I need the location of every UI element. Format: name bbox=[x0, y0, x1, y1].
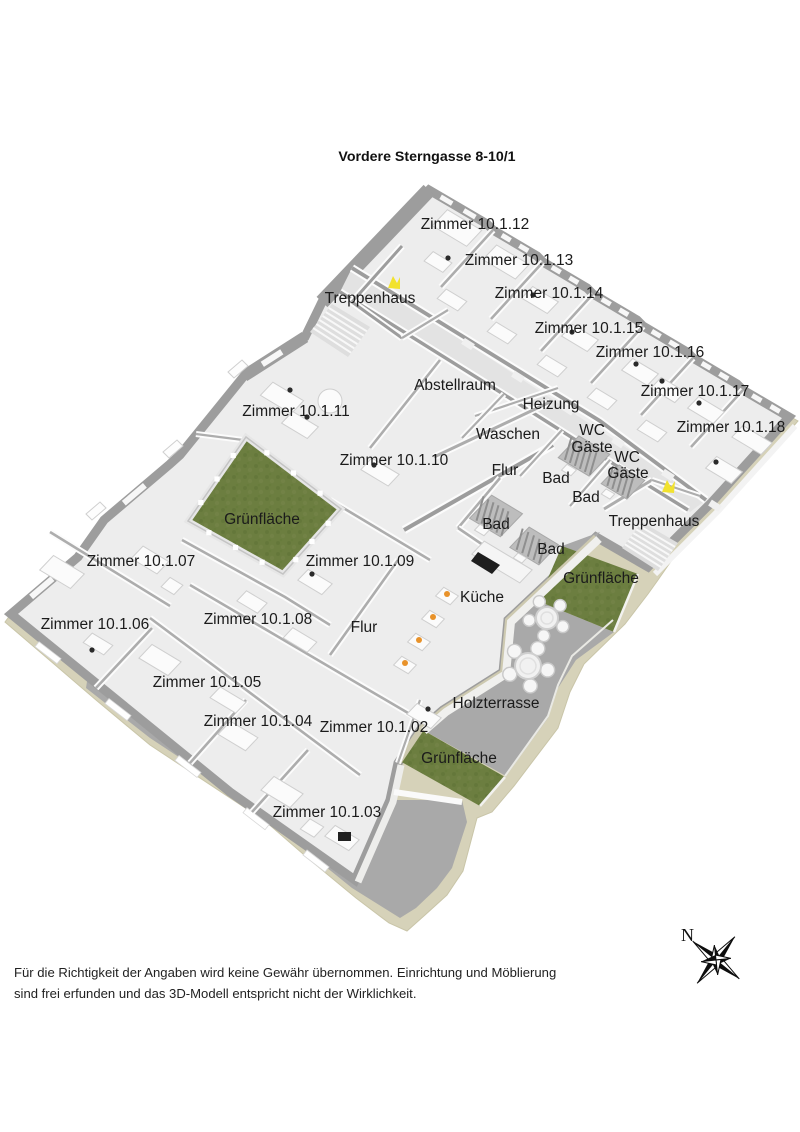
svg-text:Heizung: Heizung bbox=[523, 396, 580, 413]
svg-text:Zimmer 10.1.11: Zimmer 10.1.11 bbox=[242, 403, 349, 420]
svg-text:Zimmer 10.1.17: Zimmer 10.1.17 bbox=[641, 383, 750, 400]
svg-text:Zimmer 10.1.10: Zimmer 10.1.10 bbox=[340, 452, 449, 469]
svg-text:Zimmer 10.1.05: Zimmer 10.1.05 bbox=[153, 674, 262, 691]
svg-text:Zimmer 10.1.16: Zimmer 10.1.16 bbox=[596, 344, 705, 361]
svg-text:sind frei erfunden und das 3D-: sind frei erfunden und das 3D-Modell ent… bbox=[14, 986, 416, 1001]
svg-text:Flur: Flur bbox=[492, 462, 519, 479]
svg-text:Für die Richtigkeit der Angabe: Für die Richtigkeit der Angaben wird kei… bbox=[14, 965, 556, 980]
svg-text:Treppenhaus: Treppenhaus bbox=[609, 513, 700, 530]
svg-text:N: N bbox=[681, 925, 694, 945]
svg-text:Küche: Küche bbox=[460, 589, 504, 606]
svg-text:Zimmer 10.1.02: Zimmer 10.1.02 bbox=[320, 719, 429, 736]
svg-text:Zimmer 10.1.07: Zimmer 10.1.07 bbox=[87, 553, 196, 570]
svg-text:Waschen: Waschen bbox=[476, 426, 540, 443]
svg-text:Bad: Bad bbox=[572, 489, 600, 506]
svg-text:Zimmer 10.1.18: Zimmer 10.1.18 bbox=[677, 419, 786, 436]
svg-text:Zimmer 10.1.15: Zimmer 10.1.15 bbox=[535, 320, 644, 337]
svg-text:Bad: Bad bbox=[537, 541, 565, 558]
svg-text:Abstellraum: Abstellraum bbox=[414, 377, 496, 394]
svg-text:Zimmer 10.1.03: Zimmer 10.1.03 bbox=[273, 804, 382, 821]
svg-text:Zimmer 10.1.08: Zimmer 10.1.08 bbox=[204, 611, 313, 628]
svg-text:Zimmer 10.1.13: Zimmer 10.1.13 bbox=[465, 252, 574, 269]
svg-text:Grünfläche: Grünfläche bbox=[421, 750, 497, 767]
svg-text:Holzterrasse: Holzterrasse bbox=[453, 695, 540, 712]
svg-text:Gäste: Gäste bbox=[607, 465, 648, 482]
svg-text:Flur: Flur bbox=[351, 619, 378, 636]
svg-text:Zimmer 10.1.06: Zimmer 10.1.06 bbox=[41, 616, 150, 633]
svg-text:Treppenhaus: Treppenhaus bbox=[325, 290, 416, 307]
svg-text:Grünfläche: Grünfläche bbox=[224, 511, 300, 528]
svg-text:Zimmer 10.1.09: Zimmer 10.1.09 bbox=[306, 553, 415, 570]
svg-text:Zimmer 10.1.12: Zimmer 10.1.12 bbox=[421, 216, 530, 233]
svg-text:Grünfläche: Grünfläche bbox=[563, 570, 639, 587]
svg-text:WC: WC bbox=[579, 422, 605, 439]
svg-text:Zimmer 10.1.14: Zimmer 10.1.14 bbox=[495, 285, 604, 302]
svg-text:WC: WC bbox=[614, 449, 640, 466]
svg-text:Gäste: Gäste bbox=[571, 439, 612, 456]
svg-text:Bad: Bad bbox=[542, 470, 570, 487]
svg-text:Bad: Bad bbox=[482, 516, 510, 533]
svg-text:Zimmer 10.1.04: Zimmer 10.1.04 bbox=[204, 713, 313, 730]
svg-text:Vordere Sterngasse 8-10/1: Vordere Sterngasse 8-10/1 bbox=[338, 149, 515, 165]
